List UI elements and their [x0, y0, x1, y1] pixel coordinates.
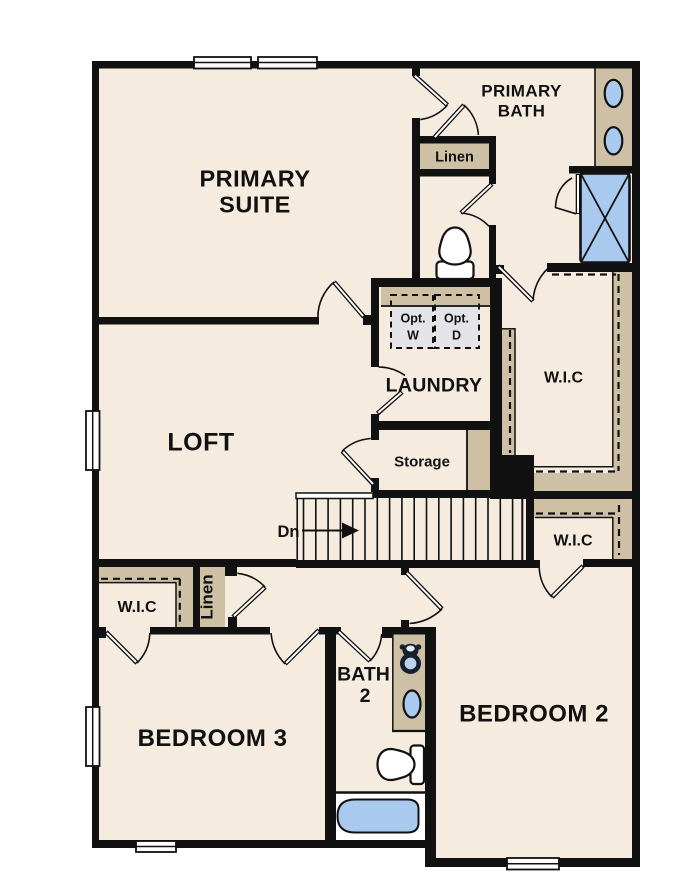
svg-text:Opt.: Opt. — [444, 312, 469, 326]
svg-text:PRIMARY: PRIMARY — [200, 166, 311, 192]
svg-text:BATH: BATH — [337, 664, 390, 686]
svg-text:Dn: Dn — [278, 523, 300, 541]
svg-text:BATH: BATH — [498, 102, 546, 121]
svg-text:SUITE: SUITE — [219, 192, 291, 218]
svg-text:Linen: Linen — [198, 574, 217, 619]
svg-text:LAUNDRY: LAUNDRY — [386, 375, 483, 397]
svg-text:W.I.C: W.I.C — [553, 533, 593, 550]
svg-text:W: W — [407, 329, 419, 343]
svg-text:PRIMARY: PRIMARY — [481, 82, 562, 101]
svg-text:Linen: Linen — [435, 150, 474, 166]
svg-text:Storage: Storage — [394, 454, 450, 471]
svg-text:Opt.: Opt. — [401, 312, 426, 326]
svg-text:BEDROOM 2: BEDROOM 2 — [459, 701, 609, 728]
svg-text:2: 2 — [360, 685, 371, 707]
svg-text:LOFT: LOFT — [167, 429, 234, 457]
svg-text:W.I.C: W.I.C — [544, 370, 584, 387]
svg-text:W.I.C: W.I.C — [117, 599, 157, 616]
svg-text:D: D — [452, 329, 461, 343]
svg-text:BEDROOM 3: BEDROOM 3 — [138, 725, 288, 752]
